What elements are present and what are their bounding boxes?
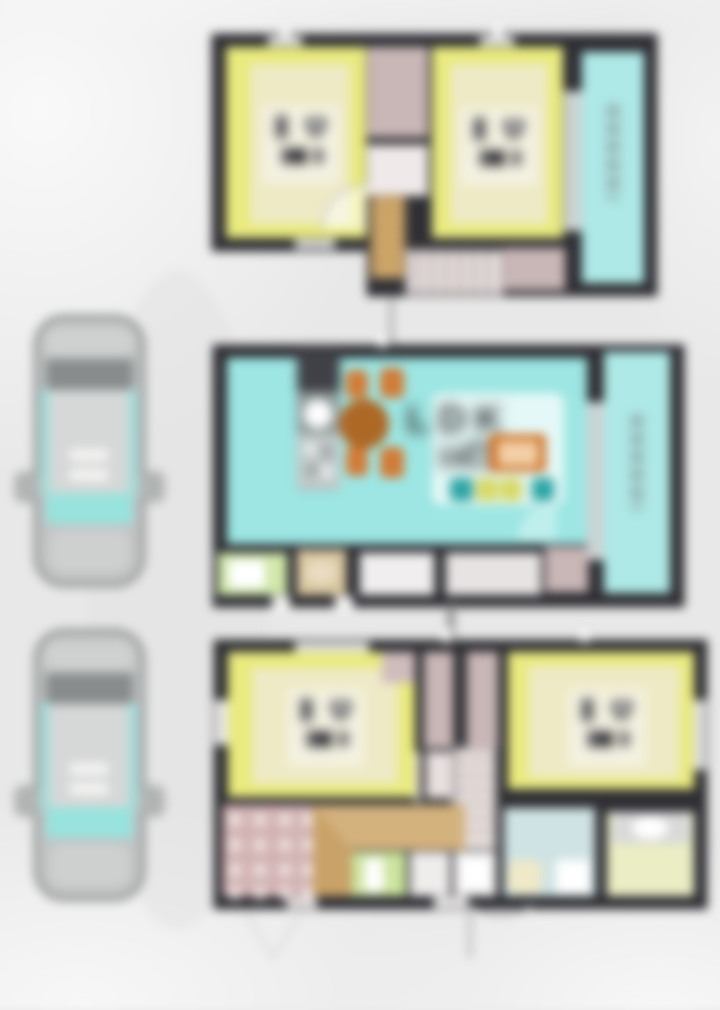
svg-text:16: 16 [437, 442, 467, 472]
